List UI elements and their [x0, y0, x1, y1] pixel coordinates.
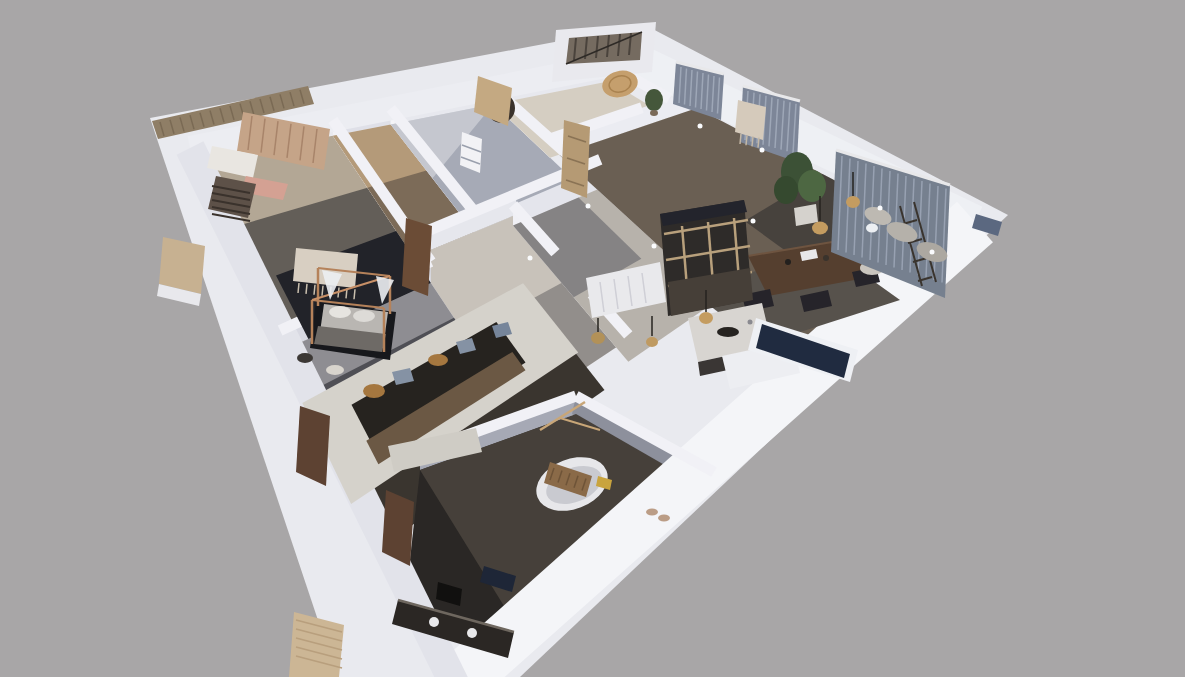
macrame-fringe	[314, 285, 315, 295]
bedroom-pouf	[297, 353, 313, 363]
bedroom-door	[561, 120, 590, 198]
wall-spotlight	[751, 219, 756, 224]
bed-pillow	[329, 306, 351, 318]
ceiling-disc-light	[866, 224, 878, 233]
wall-spotlight	[878, 206, 883, 211]
wall-spotlight	[698, 124, 703, 129]
macrame-fringe	[322, 286, 323, 296]
macrame-fringe	[354, 289, 355, 299]
rattan-pendant	[699, 312, 713, 324]
vanity-sink	[467, 628, 477, 638]
wicker-basket	[428, 354, 448, 366]
rattan-pendant	[646, 337, 658, 347]
wall-spotlight	[930, 250, 935, 255]
wicker-basket	[363, 384, 385, 398]
vanity-sink	[429, 617, 439, 627]
fiddle-leaf-plant	[798, 170, 826, 202]
floorplan-render-stage	[0, 0, 1185, 677]
wall-spotlight	[760, 148, 765, 153]
bed-pillow	[353, 310, 375, 322]
macrame-fringe	[758, 138, 759, 148]
table-decor	[823, 255, 829, 261]
cooktop-pot	[717, 327, 739, 337]
entry-plant	[645, 89, 663, 111]
balcony-left-deck	[159, 237, 205, 294]
table-vase	[785, 259, 791, 265]
slipper	[658, 515, 670, 522]
macrame-fringe	[306, 284, 307, 294]
hallway-door	[402, 218, 432, 296]
rattan-pendant	[812, 222, 828, 235]
wall-spotlight	[528, 256, 533, 261]
macrame-fringe	[746, 135, 747, 145]
macrame-fringe	[740, 134, 741, 144]
macrame-fringe	[752, 136, 753, 146]
macrame-fringe	[298, 283, 299, 293]
wall-spotlight	[652, 244, 657, 249]
entry-plant-pot	[650, 110, 658, 116]
slipper	[646, 509, 658, 516]
rattan-pendant	[846, 196, 860, 208]
master-door	[296, 406, 330, 486]
bedroom-pouf	[326, 365, 344, 375]
rattan-pendant	[591, 332, 605, 344]
apartment-3d-cutaway	[0, 0, 1185, 677]
wall-spotlight	[586, 204, 591, 209]
fiddle-leaf-plant	[774, 176, 798, 204]
island-faucet	[748, 320, 753, 325]
